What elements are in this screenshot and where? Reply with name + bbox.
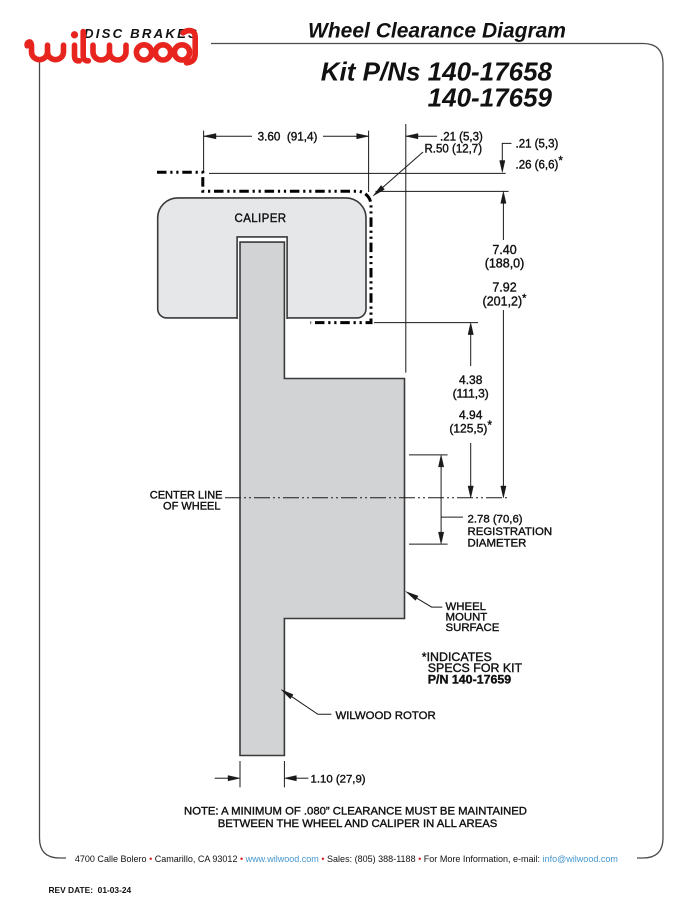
svg-text:(188,0): (188,0)	[485, 257, 525, 271]
svg-text:NOTE: A MINIMUM OF .080” CLEAR: NOTE: A MINIMUM OF .080” CLEARANCE MUST …	[184, 806, 527, 818]
svg-text:OF WHEEL: OF WHEEL	[163, 501, 220, 513]
svg-text:7.40: 7.40	[492, 243, 516, 257]
svg-text:(125,5)*: (125,5)*	[449, 418, 492, 436]
svg-text:2.78 (70,6): 2.78 (70,6)	[468, 514, 523, 526]
svg-text:(201,2)*: (201,2)*	[483, 293, 528, 309]
svg-text:3.60 (91,4): 3.60 (91,4)	[258, 130, 318, 143]
svg-text:DIAMETER: DIAMETER	[468, 538, 527, 550]
svg-text:7.92: 7.92	[492, 281, 516, 295]
svg-text:4700 Calle Bolero • Camarillo,: 4700 Calle Bolero • Camarillo, CA 93012 …	[75, 854, 618, 864]
svg-text:.26 (6,6)*: .26 (6,6)*	[516, 156, 564, 172]
svg-text:SURFACE: SURFACE	[446, 622, 500, 634]
svg-text:CALIPER: CALIPER	[234, 213, 286, 225]
svg-text:1.10 (27,9): 1.10 (27,9)	[311, 773, 366, 785]
svg-text:4.38: 4.38	[459, 373, 483, 387]
svg-text:4.94: 4.94	[459, 408, 483, 422]
svg-text:.21 (5,3): .21 (5,3)	[440, 131, 483, 143]
svg-text:.21 (5,3): .21 (5,3)	[516, 138, 559, 150]
svg-text:140-17659: 140-17659	[428, 83, 553, 113]
svg-text:Wheel Clearance Diagram: Wheel Clearance Diagram	[308, 20, 566, 43]
svg-text:(111,3): (111,3)	[453, 387, 489, 401]
svg-text:REV DATE: 01-03-24: REV DATE: 01-03-24	[49, 885, 132, 895]
svg-text:WILWOOD ROTOR: WILWOOD ROTOR	[336, 710, 436, 722]
svg-text:P/N 140-17659: P/N 140-17659	[428, 673, 511, 687]
svg-text:REGISTRATION: REGISTRATION	[468, 526, 553, 538]
svg-text:BETWEEN THE WHEEL AND CALIPER: BETWEEN THE WHEEL AND CALIPER IN ALL ARE…	[218, 818, 498, 830]
svg-text:R.50 (12,7): R.50 (12,7)	[425, 143, 483, 155]
